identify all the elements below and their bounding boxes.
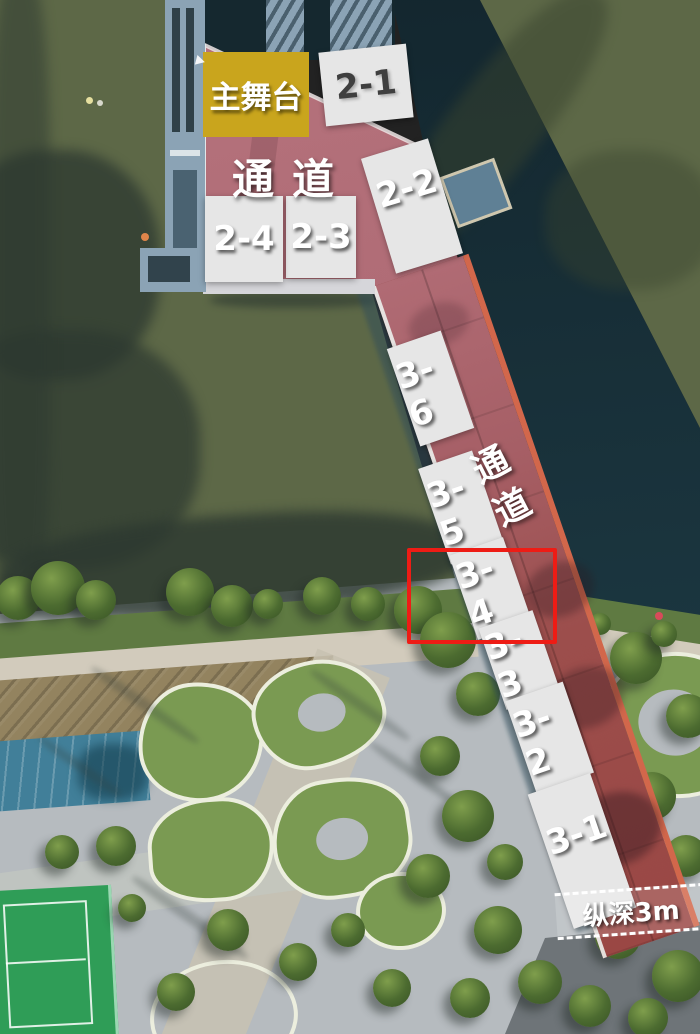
buoy bbox=[141, 233, 149, 241]
corridor-label-top: 通道 bbox=[232, 146, 352, 207]
booth-2-4: 2-4 bbox=[205, 196, 283, 282]
tree bbox=[442, 790, 494, 842]
buoy bbox=[86, 97, 93, 104]
highlight-box-3-4 bbox=[407, 548, 557, 644]
pier-slot bbox=[172, 8, 180, 132]
court-lines bbox=[3, 900, 93, 1028]
pier-slot bbox=[186, 8, 194, 132]
tree bbox=[76, 580, 116, 620]
tree bbox=[118, 894, 146, 922]
gate-tower bbox=[266, 0, 304, 52]
venue-aerial-map: 主舞台 通道 通道 2-1 2-2 2-3 2-4 3-6 3-5 3-4 3-… bbox=[0, 0, 700, 1034]
tree bbox=[406, 854, 450, 898]
tree bbox=[331, 913, 365, 947]
main-stage-label: 主舞台 bbox=[203, 52, 309, 137]
tree bbox=[474, 906, 522, 954]
sports-court bbox=[0, 885, 119, 1034]
tree bbox=[652, 950, 700, 1002]
buoy bbox=[655, 612, 663, 620]
tree bbox=[166, 568, 214, 616]
booth-2-3: 2-3 bbox=[286, 196, 356, 278]
depth-dimension-label: 纵深3m bbox=[555, 883, 700, 940]
tree bbox=[487, 844, 523, 880]
tree bbox=[569, 985, 611, 1027]
tree bbox=[157, 973, 195, 1011]
buoy bbox=[97, 100, 103, 106]
tree bbox=[207, 909, 249, 951]
hedge-garden-path bbox=[313, 815, 370, 864]
tree bbox=[651, 621, 677, 647]
tree bbox=[628, 998, 668, 1034]
tree bbox=[303, 577, 341, 615]
tree bbox=[96, 826, 136, 866]
tree bbox=[279, 943, 317, 981]
pier-step bbox=[170, 150, 200, 156]
tree bbox=[211, 585, 253, 627]
bridge-shadow-on-water bbox=[545, 150, 700, 290]
tree bbox=[420, 736, 460, 776]
booth-2-1: 2-1 bbox=[318, 44, 413, 127]
pier-foot bbox=[140, 248, 206, 292]
tree-shadow-on-water bbox=[0, 0, 50, 620]
plaza-shadow-on-water bbox=[210, 292, 380, 308]
tree bbox=[253, 589, 283, 619]
tree bbox=[45, 835, 79, 869]
tree bbox=[450, 978, 490, 1018]
pier-foot-inner bbox=[148, 256, 190, 282]
tree bbox=[351, 587, 385, 621]
tree bbox=[373, 969, 411, 1007]
main-stage-text: 主舞台 bbox=[210, 72, 303, 117]
tree bbox=[518, 960, 562, 1004]
